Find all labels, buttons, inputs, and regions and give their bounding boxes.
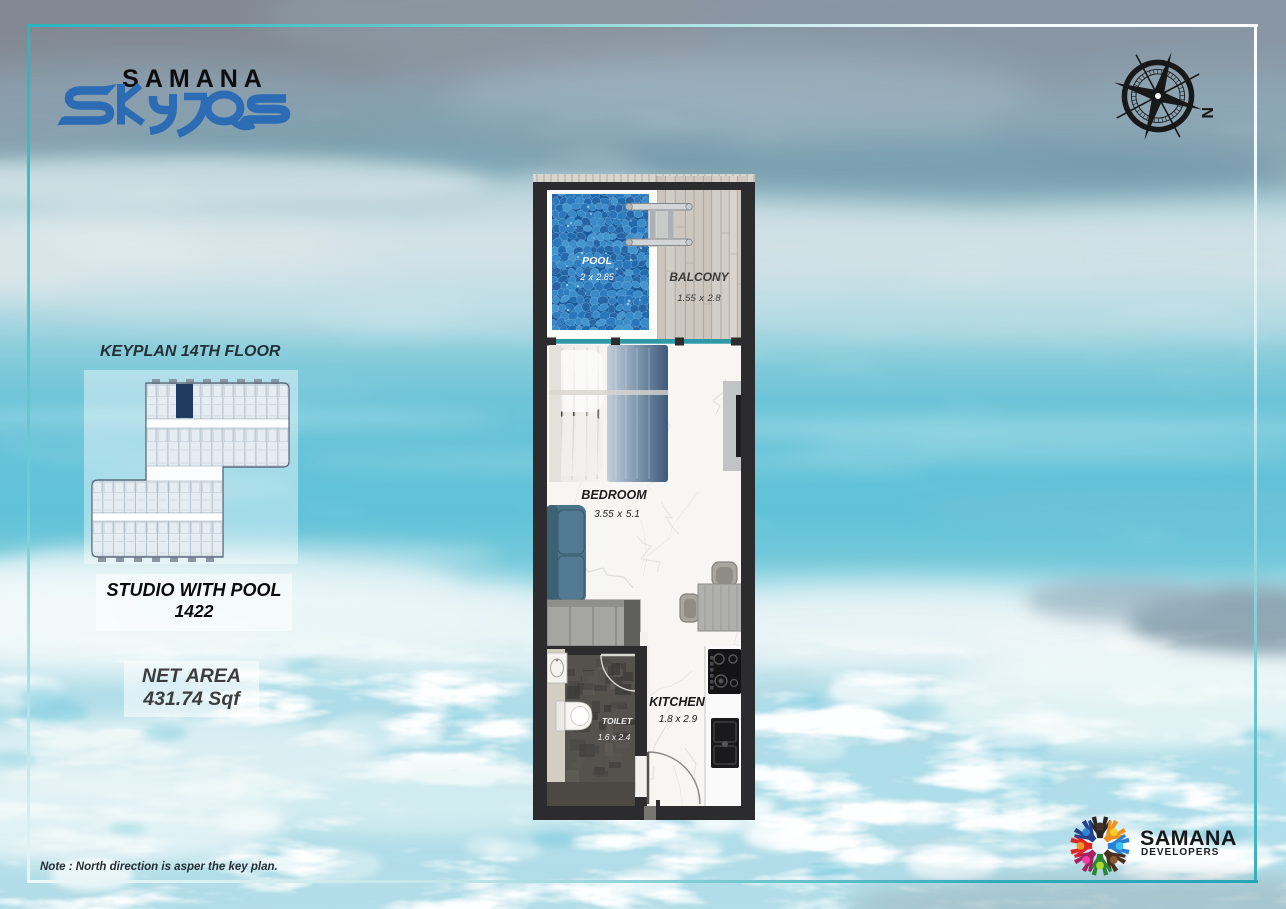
svg-text:3.55 x 5.1: 3.55 x 5.1 <box>594 509 640 520</box>
svg-text:N: N <box>1198 107 1215 119</box>
svg-text:2 x 2.85: 2 x 2.85 <box>579 272 615 282</box>
svg-text:KITCHEN: KITCHEN <box>649 695 706 709</box>
svg-text:1.55 x 2.8: 1.55 x 2.8 <box>677 293 721 304</box>
svg-text:BEDROOM: BEDROOM <box>581 488 647 502</box>
svg-text:TOILET: TOILET <box>602 716 633 726</box>
svg-text:POOL: POOL <box>582 255 612 267</box>
svg-text:1.6 x 2.4: 1.6 x 2.4 <box>598 732 631 742</box>
svg-text:1.8 x 2.9: 1.8 x 2.9 <box>659 714 698 725</box>
svg-text:BALCONY: BALCONY <box>669 270 729 284</box>
